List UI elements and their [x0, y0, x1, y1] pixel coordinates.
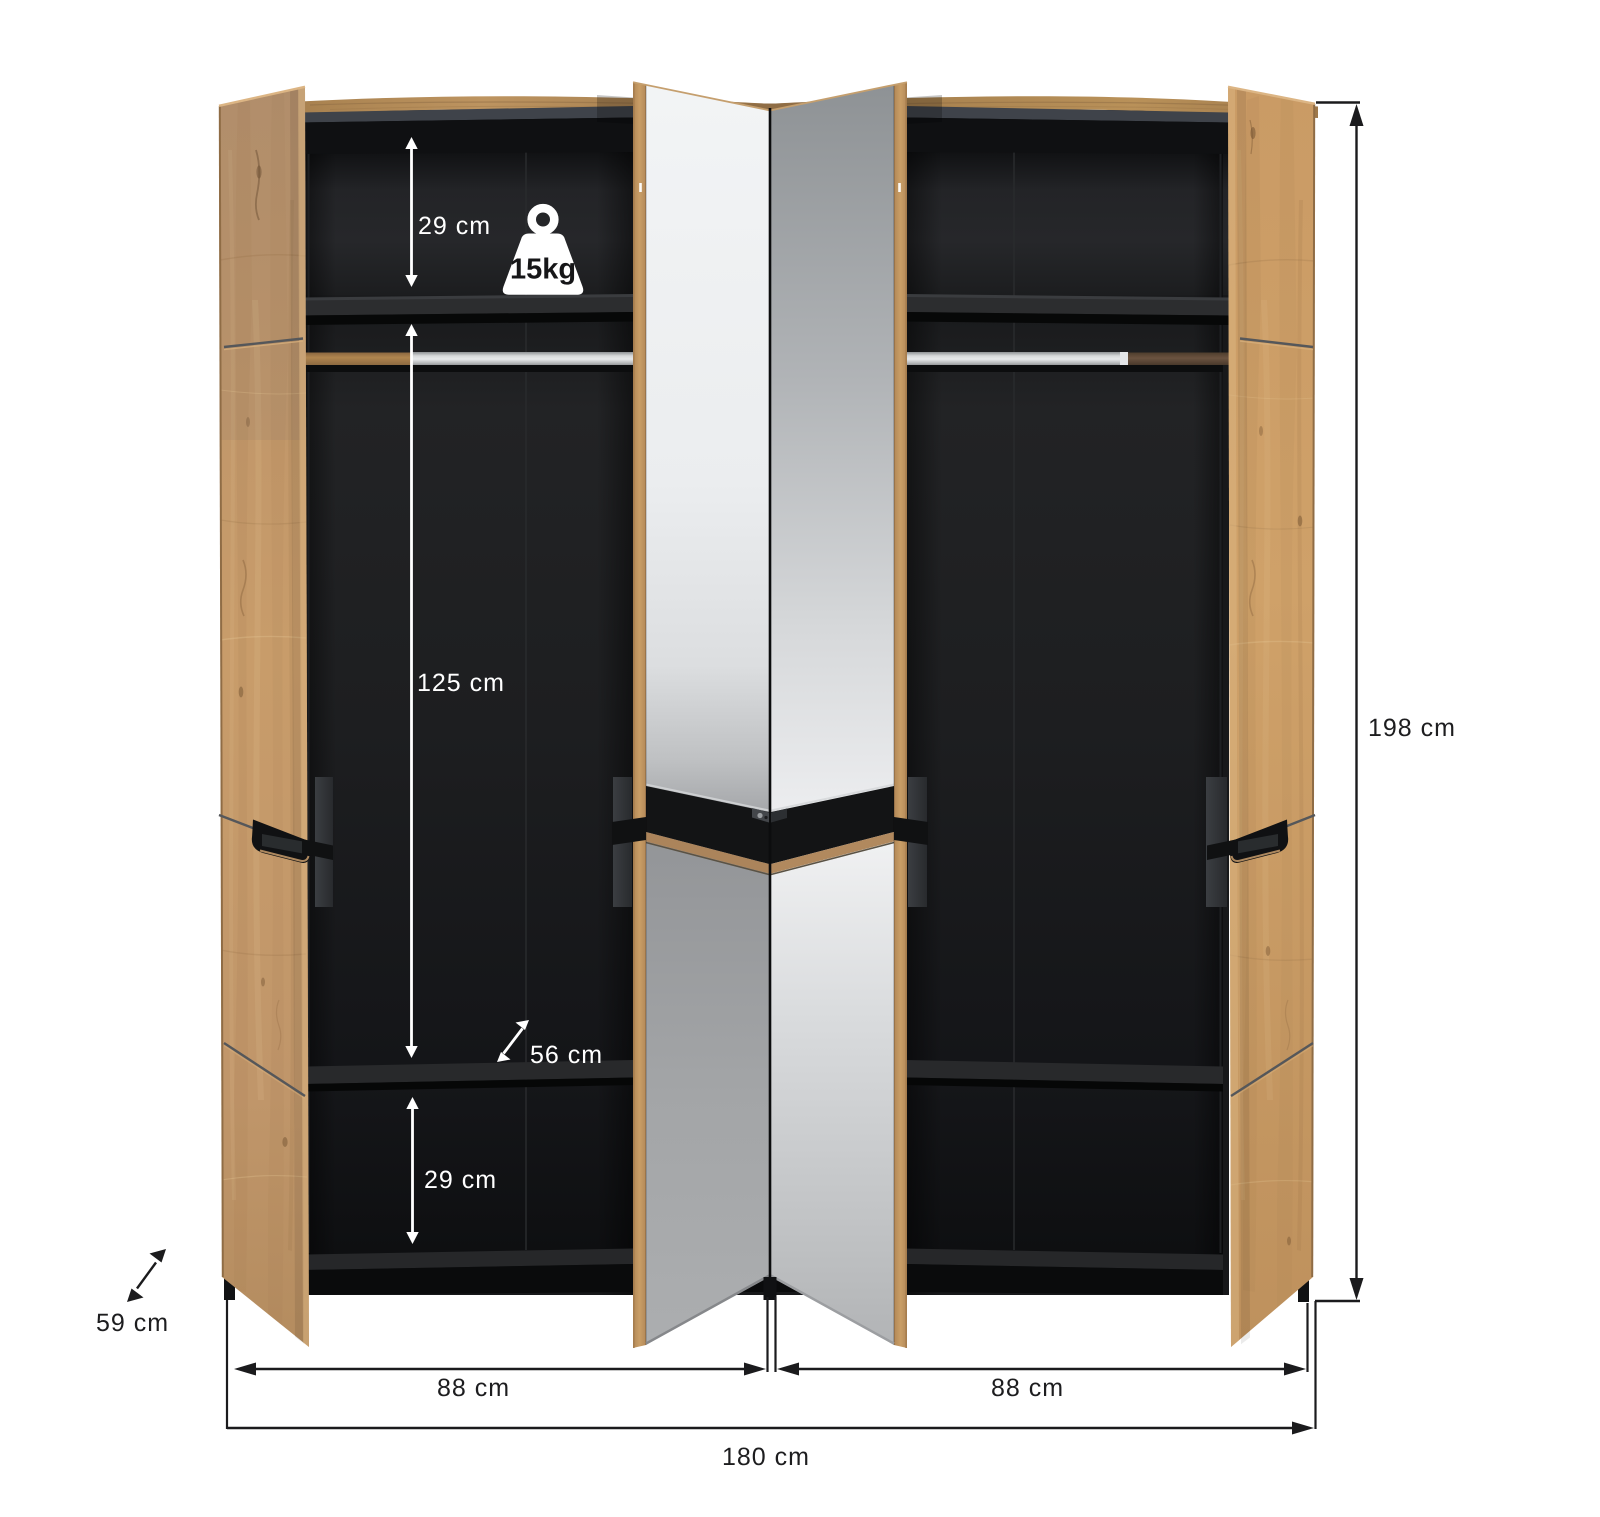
svg-text:125 cm: 125 cm	[417, 669, 505, 697]
svg-text:56 cm: 56 cm	[530, 1041, 603, 1069]
svg-text:59 cm: 59 cm	[96, 1309, 169, 1337]
svg-text:88 cm: 88 cm	[991, 1374, 1064, 1402]
svg-text:88 cm: 88 cm	[437, 1374, 510, 1402]
svg-text:198 cm: 198 cm	[1368, 714, 1456, 742]
svg-text:29 cm: 29 cm	[418, 212, 491, 240]
svg-text:15kg: 15kg	[510, 254, 576, 286]
svg-text:180 cm: 180 cm	[722, 1443, 810, 1471]
svg-text:29 cm: 29 cm	[424, 1166, 497, 1194]
